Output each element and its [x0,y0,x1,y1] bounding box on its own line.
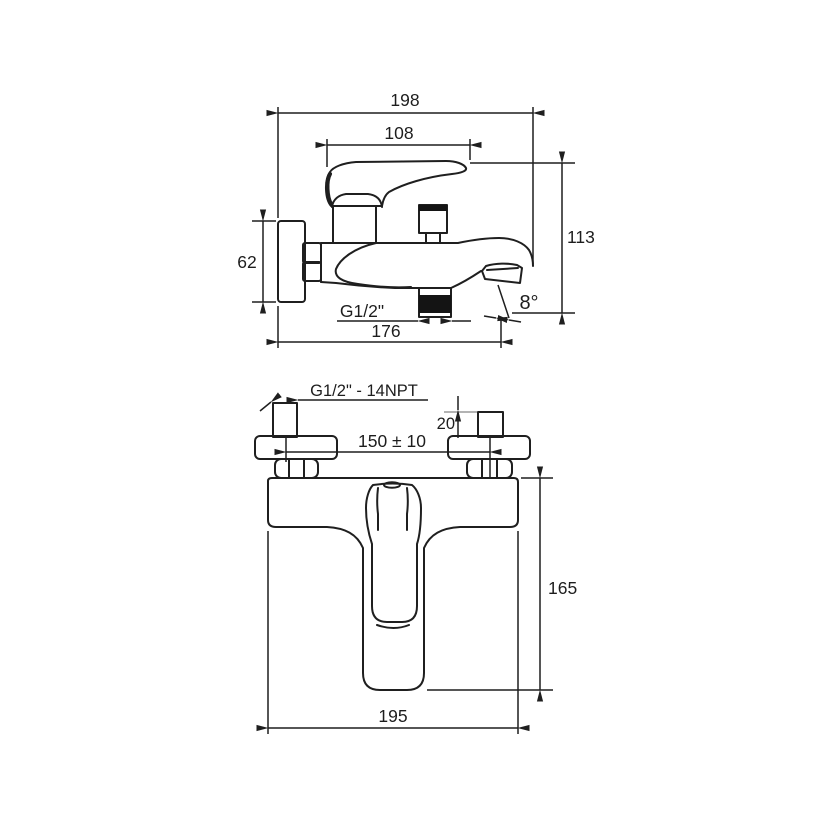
left-inlet-pipe [273,403,297,437]
dim-flange-height: 62 [237,221,276,302]
dim-flange-height-label: 62 [237,252,256,272]
right-wall-flange [448,436,530,459]
dim-shower-thread-label: G1/2" [340,301,384,321]
dim-wall-to-spout: 176 [278,306,501,348]
dim-center-distance: 150 ± 10 [286,431,490,477]
dim-height-label: 113 [567,227,595,247]
dim-body-width-label: 195 [378,706,407,726]
dim-overall-width-label: 198 [390,90,419,110]
dim-connection-thread: G1/2" - 14NPT [260,382,428,411]
dim-inlet-pipe-length: 20 [437,396,477,438]
dim-center-distance-label: 150 ± 10 [358,431,426,451]
side-view: 198 108 113 62 G1/2" [237,90,595,348]
front-view: G1/2" - 14NPT 20 150 ± 10 165 [255,382,577,734]
dim-wall-to-spout-label: 176 [371,321,400,341]
technical-drawing-page: 198 108 113 62 G1/2" [0,0,830,830]
spout-aerator [482,264,522,283]
diverter-knob [419,205,447,243]
cartridge-housing [332,194,382,243]
dim-spout-angle-label: 8° [519,292,538,314]
shower-outlet [419,288,451,317]
dim-spout-angle: 8° [484,285,539,322]
wall-flange-side [278,221,305,302]
faucet-body-front [268,478,518,690]
handle-top-detail [384,482,400,488]
dim-inlet-pipe-length-label: 20 [437,415,455,433]
right-inlet-pipe [478,412,503,437]
thread-hatch [419,295,451,313]
body-contour-line [336,243,411,287]
dim-body-height: 165 [427,478,577,690]
dim-connection-thread-label: G1/2" - 14NPT [310,382,418,400]
left-hex-nut [275,459,318,478]
faucet-dimension-drawing: 198 108 113 62 G1/2" [0,0,830,830]
lever-handle-front [366,482,421,628]
dim-body-height-label: 165 [548,578,577,598]
left-wall-flange [255,436,337,459]
dim-handle-length-label: 108 [384,123,413,143]
lever-handle-side [326,161,466,206]
dim-body-width: 195 [268,531,518,734]
